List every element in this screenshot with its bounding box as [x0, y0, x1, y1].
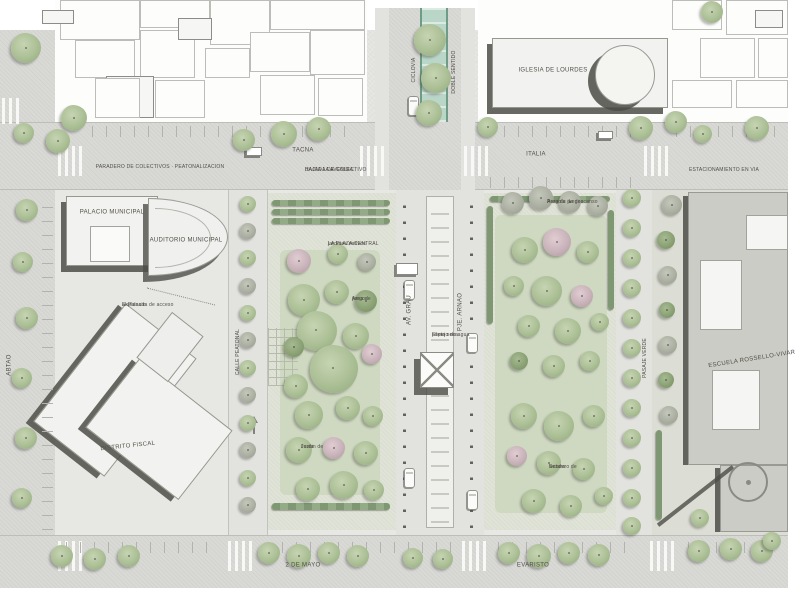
school-wing-a: [700, 260, 742, 330]
tree-gray: [660, 406, 678, 424]
tree-green: [577, 241, 599, 263]
tree-green: [16, 199, 38, 221]
tree-green: [623, 429, 641, 447]
tree-green: [15, 427, 37, 449]
tree-green: [623, 399, 641, 417]
tree-blossom: [287, 249, 311, 273]
context-building-outline: [270, 0, 365, 30]
tree-green: [720, 538, 742, 560]
crosswalk: [650, 541, 676, 571]
tree-green: [14, 123, 34, 143]
tree-green: [318, 542, 340, 564]
tree-green: [511, 403, 537, 429]
tree-green: [498, 542, 520, 564]
tree-green: [537, 451, 561, 475]
tree-green: [595, 487, 613, 505]
tree-green: [84, 548, 106, 570]
tree-dark: [659, 302, 675, 318]
context-building-outline: [42, 10, 74, 24]
tree-green: [258, 542, 280, 564]
tree-green: [623, 489, 641, 507]
parking-ticks: [490, 177, 636, 188]
context-building-outline: [178, 18, 212, 40]
tree-green: [13, 252, 33, 272]
hedge-row: [272, 209, 390, 215]
tree-green: [588, 544, 610, 566]
hedge-row: [656, 430, 662, 520]
tree-green: [421, 63, 451, 93]
tree-green: [61, 105, 87, 131]
tree-green: [623, 249, 641, 267]
school-wing-c: [712, 370, 760, 430]
context-building-outline: [260, 75, 315, 115]
tree-green: [433, 549, 453, 569]
tree-gray: [529, 186, 553, 210]
tree-green: [46, 129, 70, 153]
context-building-outline: [155, 80, 205, 118]
tree-green: [240, 196, 256, 212]
parked-car: [404, 468, 415, 488]
context-building-outline: [736, 80, 788, 108]
hedge-row: [487, 206, 493, 324]
tree-green: [12, 488, 32, 508]
tree-green: [763, 532, 781, 550]
tree-green: [558, 542, 580, 564]
tree-green: [518, 315, 540, 337]
tree-dark: [510, 352, 528, 370]
context-building-outline: [95, 78, 140, 118]
tree-gray: [659, 336, 677, 354]
school-wing-b: [746, 215, 788, 250]
tree-gray: [240, 497, 256, 513]
tree-blossom: [362, 344, 382, 364]
tree-green: [16, 307, 38, 329]
tree-green: [12, 368, 32, 388]
tree-green: [701, 1, 723, 23]
context-building-outline: [250, 32, 310, 72]
playground-center: [746, 480, 751, 485]
tree-dark: [657, 231, 675, 249]
church-tower: [595, 45, 655, 105]
tree-green: [347, 545, 369, 567]
label-street-note-right: ESTACIONAMIENTO EN VIA: [689, 167, 759, 173]
palacio-courtyard: [90, 226, 130, 262]
tree-green: [745, 116, 769, 140]
context-building-outline: [672, 80, 732, 108]
tree-green: [233, 129, 255, 151]
label-pedestrian-street: CALLE PEATONAL: [235, 329, 241, 375]
tree-green: [296, 477, 320, 501]
tree-green: [330, 471, 358, 499]
tree-green: [354, 441, 378, 465]
tree-green: [414, 24, 446, 56]
tree-green: [284, 374, 308, 398]
tree-green: [555, 318, 581, 344]
monument: [420, 352, 454, 388]
bollard-row-east: [470, 200, 473, 528]
label-street-bottom-left: 2 DE MAYO: [286, 562, 321, 569]
tree-green: [623, 309, 641, 327]
label-street-note-left: PARADERO DE COLECTIVOS · PEATONALIZACION: [96, 164, 225, 170]
context-building-outline: [700, 38, 755, 78]
context-building-outline: [758, 38, 788, 78]
tree-green: [543, 355, 565, 377]
tree-green: [629, 116, 653, 140]
site-plan: PALACIO MUNICIPAL AUDITORIO MUNICIPAL DI…: [0, 0, 800, 600]
label-street-bottom-right: EVARISTO: [517, 562, 549, 569]
tree-green: [478, 117, 498, 137]
tree-green: [286, 437, 312, 463]
label-ciclovia-2: DOBLE SENTIDO: [451, 50, 457, 93]
street-kiosk: [598, 131, 613, 139]
crosswalk: [228, 541, 252, 571]
hedge-row: [272, 218, 390, 224]
tree-blossom: [323, 437, 345, 459]
tree-gray: [240, 387, 256, 403]
tree-green: [295, 401, 323, 429]
label-street-italia: ITALIA: [526, 151, 546, 158]
tree-green: [403, 548, 423, 568]
school-shadow: [683, 196, 688, 465]
tree-green: [665, 111, 687, 133]
tree-green: [363, 406, 383, 426]
tree-dark: [658, 372, 674, 388]
tree-green: [691, 509, 709, 527]
hedge-row: [272, 503, 390, 510]
tree-green: [364, 480, 384, 500]
tree-blossom: [507, 446, 527, 466]
context-building-outline: [310, 30, 365, 75]
tree-green: [240, 360, 256, 376]
label-auditorio: AUDITORIO MUNICIPAL: [150, 237, 223, 244]
context-building-outline: [205, 48, 250, 78]
label-street-tacna: TACNA: [292, 147, 313, 154]
label-alley: PASAJE VERDE: [642, 338, 648, 378]
tree-blossom: [571, 285, 593, 307]
hedge-row: [272, 200, 390, 206]
label-street-abtao: ABTAO: [6, 354, 13, 375]
tree-gray: [240, 278, 256, 294]
tree-green: [240, 415, 256, 431]
tree-gray: [662, 195, 682, 215]
curb-line: [0, 535, 788, 536]
tree-gray: [240, 223, 256, 239]
tree-green: [271, 121, 297, 147]
tree-gray: [502, 192, 524, 214]
tree-green: [583, 405, 605, 427]
tree-dark: [284, 337, 304, 357]
context-building-outline: [755, 10, 783, 28]
tree-green: [580, 351, 600, 371]
street-kiosk: [396, 263, 418, 275]
tree-gray: [659, 266, 677, 284]
tree-green: [336, 396, 360, 420]
tree-green: [623, 517, 641, 535]
crosswalk: [462, 541, 486, 571]
label-boulevard-west: AV. GRAU: [406, 295, 413, 325]
tree-gray: [240, 332, 256, 348]
hedge-row: [608, 210, 614, 310]
tree-green: [688, 540, 710, 562]
tree-green: [328, 244, 348, 264]
tree-blossom: [543, 228, 571, 256]
tree-green: [560, 495, 582, 517]
tree-green: [591, 313, 609, 331]
tree-green: [416, 100, 442, 126]
tree-green: [623, 279, 641, 297]
crosswalk: [464, 146, 488, 176]
label-boulevard-east: PJE. ARNAO: [457, 293, 464, 331]
tree-green: [240, 305, 256, 321]
tree-green: [623, 219, 641, 237]
tree-green: [240, 250, 256, 266]
parking-ticks: [490, 126, 636, 137]
context-building-outline: [318, 78, 363, 116]
parked-car: [467, 490, 478, 510]
tree-green: [623, 459, 641, 477]
tree-green: [623, 339, 641, 357]
tree-green: [544, 411, 574, 441]
tree-green: [694, 125, 712, 143]
tree-green: [307, 117, 331, 141]
tree-green: [512, 237, 538, 263]
tree-gray: [240, 442, 256, 458]
label-iglesia: IGLESIA DE LOURDES: [518, 67, 587, 74]
tree-green: [532, 276, 562, 306]
tree-green: [11, 33, 41, 63]
crosswalk: [2, 98, 22, 124]
tree-green: [118, 545, 140, 567]
label-palacio: PALACIO MUNICIPAL: [80, 209, 145, 216]
tree-green: [623, 189, 641, 207]
tree-green: [310, 345, 358, 393]
tree-green: [51, 545, 73, 567]
tree-green: [504, 276, 524, 296]
tree-green: [623, 369, 641, 387]
tree-green: [522, 489, 546, 513]
tree-green: [240, 470, 256, 486]
label-ciclovia-1: CICLOVIA: [411, 58, 417, 83]
context-building-outline: [75, 40, 135, 78]
parking-ticks: [42, 200, 53, 530]
tree-green: [325, 280, 349, 304]
tree-gray: [358, 253, 376, 271]
crosswalk: [644, 146, 670, 176]
